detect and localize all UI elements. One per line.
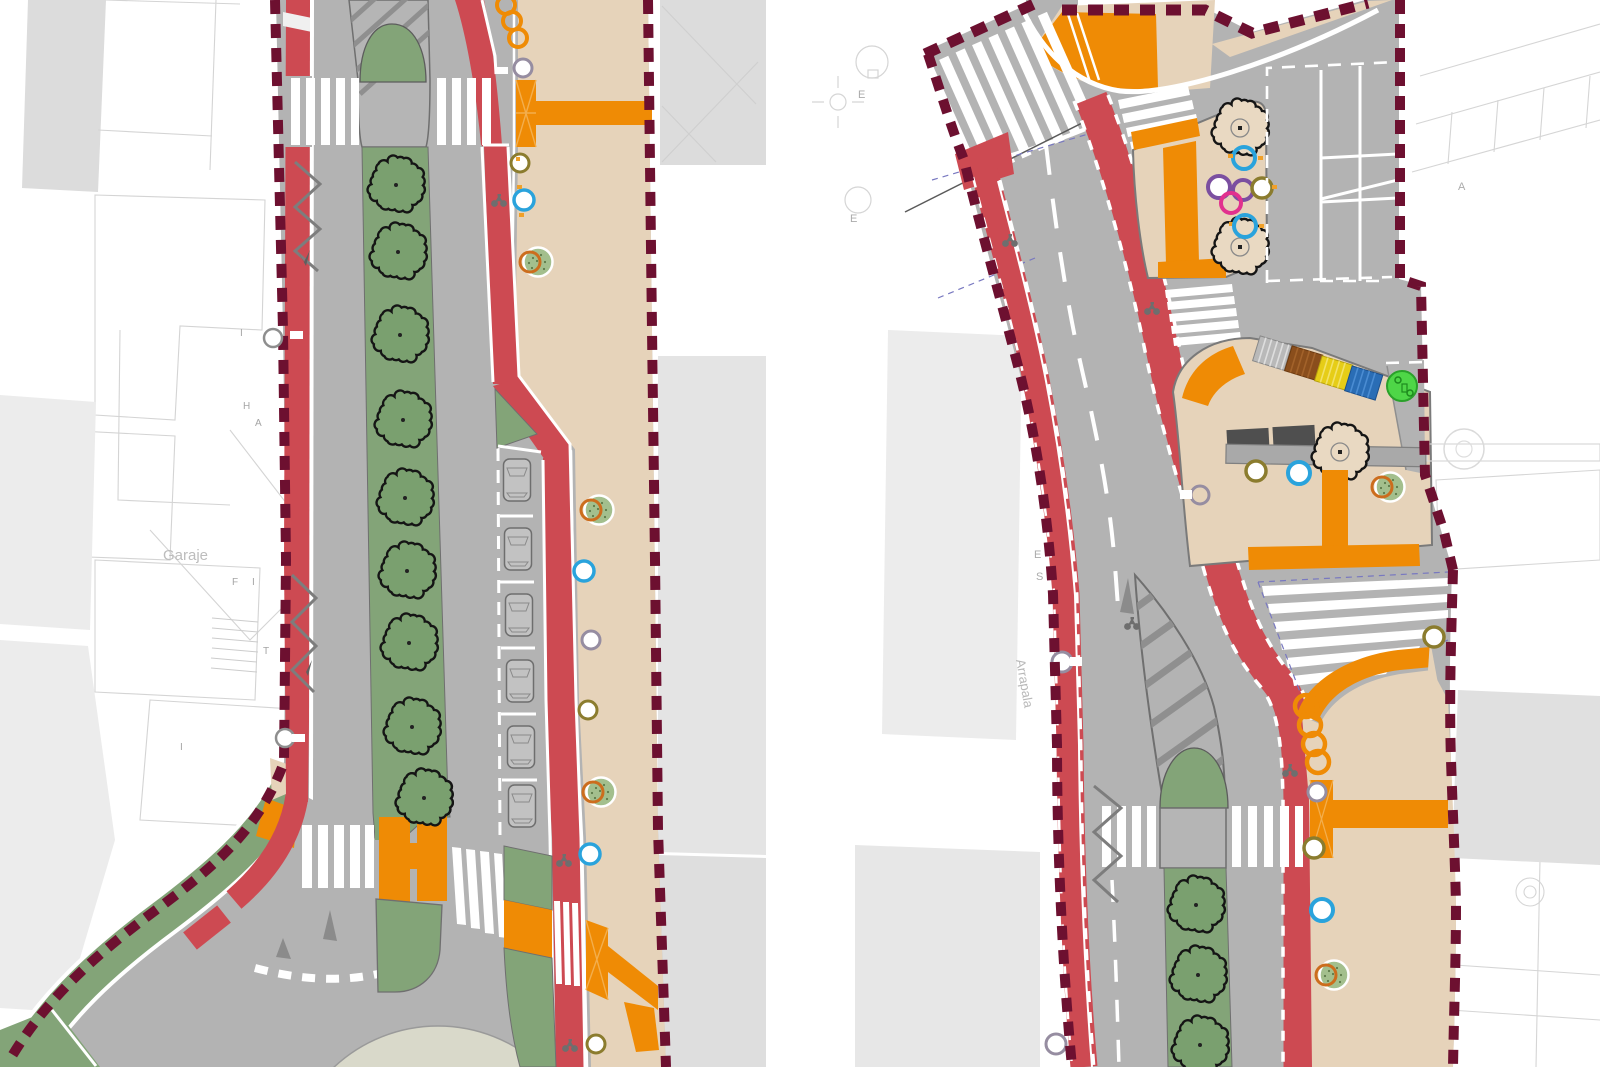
svg-text:F: F xyxy=(232,577,238,588)
svg-text:I: I xyxy=(240,328,243,339)
svg-text:I: I xyxy=(252,577,255,588)
svg-text:H: H xyxy=(243,401,250,412)
svg-text:A: A xyxy=(1458,181,1466,193)
svg-text:A: A xyxy=(255,418,262,429)
svg-text:I: I xyxy=(180,742,183,753)
svg-text:E: E xyxy=(1034,549,1041,561)
svg-text:E: E xyxy=(850,213,857,225)
svg-text:T: T xyxy=(263,646,269,657)
svg-text:E: E xyxy=(858,89,865,101)
svg-text:Garaje: Garaje xyxy=(163,547,208,564)
svg-text:S: S xyxy=(1036,571,1043,583)
